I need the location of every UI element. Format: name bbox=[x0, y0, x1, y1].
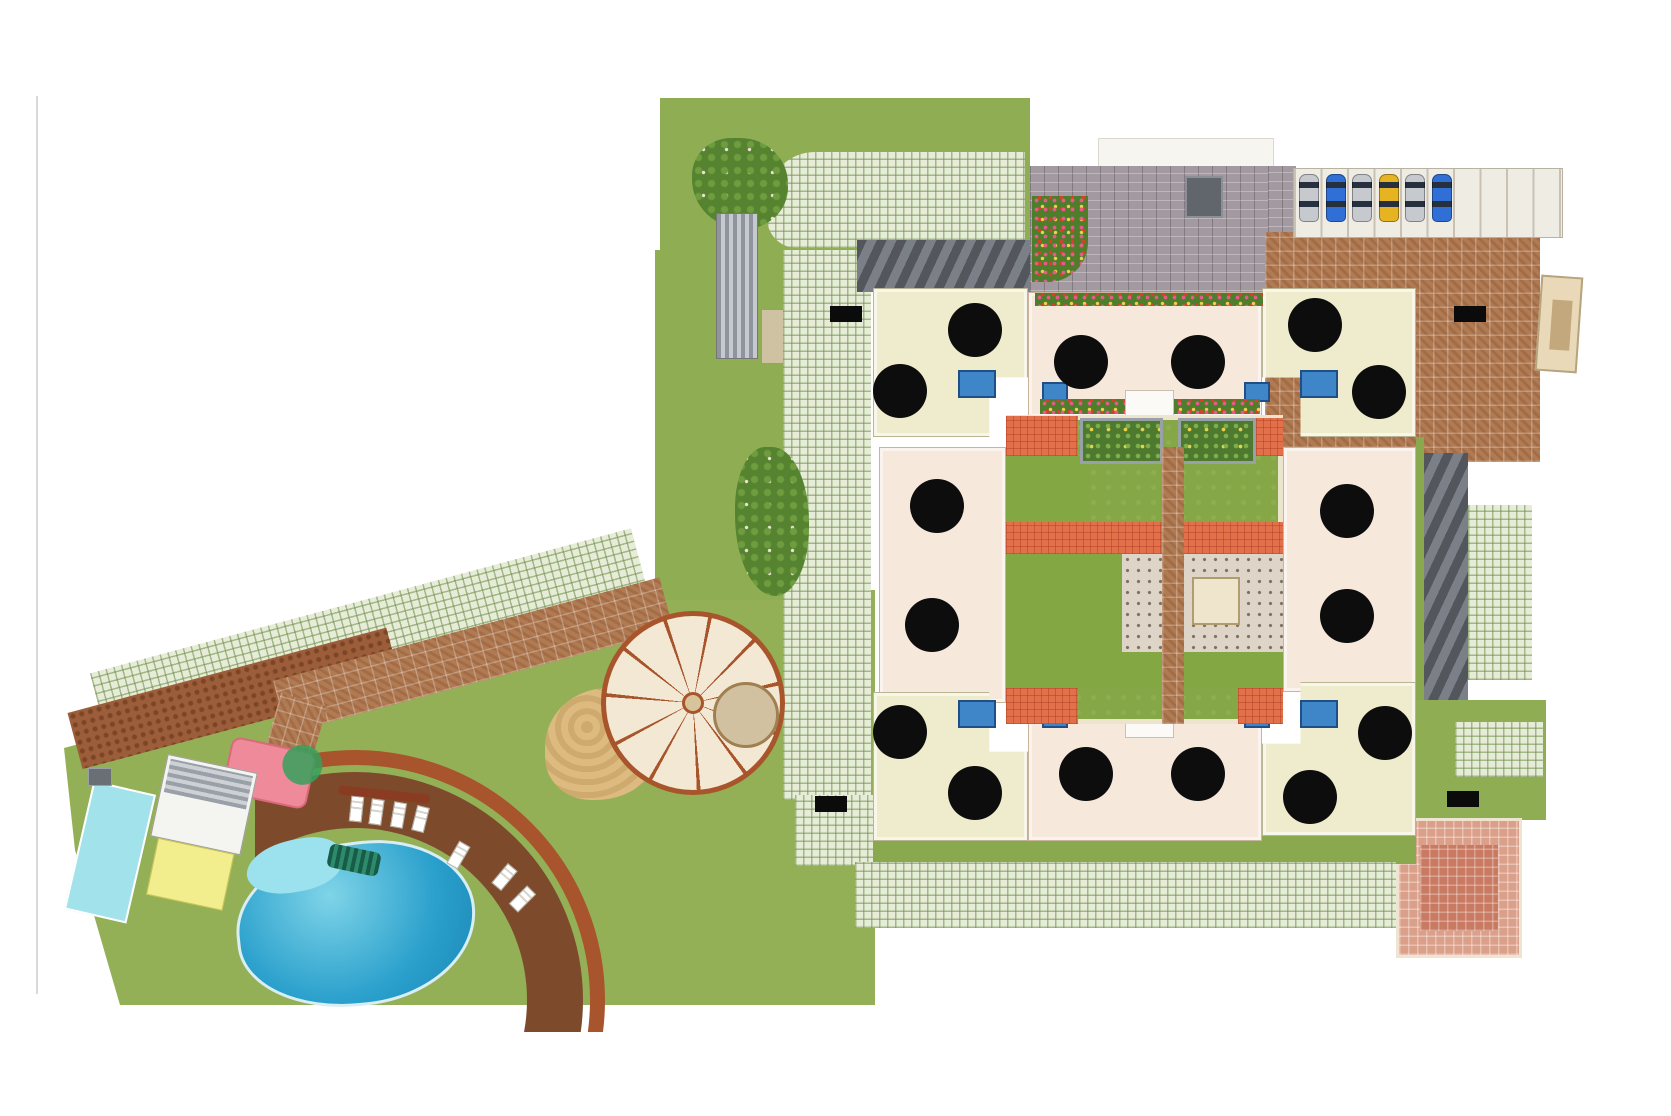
unit-badge-1 bbox=[1320, 589, 1374, 643]
grass-grid-right-band bbox=[1468, 505, 1532, 680]
courtyard-orange-sw bbox=[1006, 688, 1078, 724]
courtyard-orange-band bbox=[1006, 522, 1283, 554]
fire-driveway-skating-strip bbox=[855, 862, 1396, 928]
lawn-1 bbox=[1006, 456, 1090, 522]
car-icon bbox=[1299, 174, 1319, 222]
water-feature bbox=[958, 370, 996, 398]
unit-badge-4 bbox=[1054, 335, 1108, 389]
spiral-pavillion-circle bbox=[713, 682, 779, 748]
unit-badge-3 bbox=[1352, 365, 1406, 419]
wing-label-c bbox=[1447, 791, 1479, 807]
unit-badge-3 bbox=[873, 705, 927, 759]
unit-badge-3 bbox=[1283, 770, 1337, 824]
unit-badge-4 bbox=[905, 598, 959, 652]
right-green-sliver bbox=[1416, 437, 1424, 700]
palm-court-inner bbox=[1420, 845, 1498, 931]
car-icon bbox=[1405, 174, 1425, 222]
water-feature bbox=[1300, 700, 1338, 728]
unit-badge-1 bbox=[910, 479, 964, 533]
sculpture-wall-inner bbox=[1549, 300, 1572, 351]
lotus-pond-1 bbox=[1080, 418, 1163, 464]
courtyard-orange-nw bbox=[1006, 416, 1078, 456]
site-plan-canvas bbox=[0, 0, 1671, 1116]
courtyard-orange-ne bbox=[1256, 418, 1283, 456]
grass-grid-palm-patch bbox=[1455, 722, 1543, 777]
lounge-chair-icon bbox=[349, 795, 365, 822]
unit-badge-2 bbox=[873, 364, 927, 418]
courtyard-orange-se bbox=[1238, 688, 1283, 724]
car-icon bbox=[1352, 174, 1372, 222]
water-feature bbox=[1300, 370, 1338, 398]
sculpture-wall bbox=[1535, 275, 1584, 374]
security-kiosk-building bbox=[1185, 176, 1223, 218]
unit-badge-1 bbox=[1171, 335, 1225, 389]
unit-badge-2 bbox=[948, 766, 1002, 820]
chevron-fire-lane-right bbox=[1424, 453, 1468, 700]
service-security-kiosk-box bbox=[88, 768, 112, 786]
wing-c-block bbox=[1262, 682, 1416, 836]
chevron-fire-lane-top bbox=[857, 240, 1030, 292]
lawn-2 bbox=[1006, 554, 1122, 688]
lawn-3 bbox=[1122, 652, 1283, 688]
wing-label-a bbox=[830, 306, 862, 322]
bridge-walk bbox=[1162, 447, 1184, 724]
wing-label-d bbox=[815, 796, 847, 812]
unit-badge-4 bbox=[1171, 747, 1225, 801]
car-icon bbox=[1379, 174, 1399, 222]
entry-plaza-paving-2 bbox=[1268, 166, 1296, 236]
car-icon bbox=[1326, 174, 1346, 222]
water-feature bbox=[958, 700, 996, 728]
flower-bed-north bbox=[1035, 293, 1263, 306]
page-border-line bbox=[36, 96, 38, 994]
unit-badge-4 bbox=[1320, 484, 1374, 538]
unit-badge-3 bbox=[948, 303, 1002, 357]
wing-label-b bbox=[1454, 306, 1486, 322]
unit-badge-2 bbox=[1358, 706, 1412, 760]
spiral-hub bbox=[682, 692, 704, 714]
grass-grid-top-region bbox=[767, 152, 1025, 248]
unit-badge-1 bbox=[1059, 747, 1113, 801]
pergola-structure bbox=[716, 213, 758, 359]
courtyard-pavillion bbox=[1192, 577, 1240, 625]
unit-badge-2 bbox=[1288, 298, 1342, 352]
car-icon bbox=[1432, 174, 1452, 222]
lotus-pond-2 bbox=[1178, 418, 1256, 464]
